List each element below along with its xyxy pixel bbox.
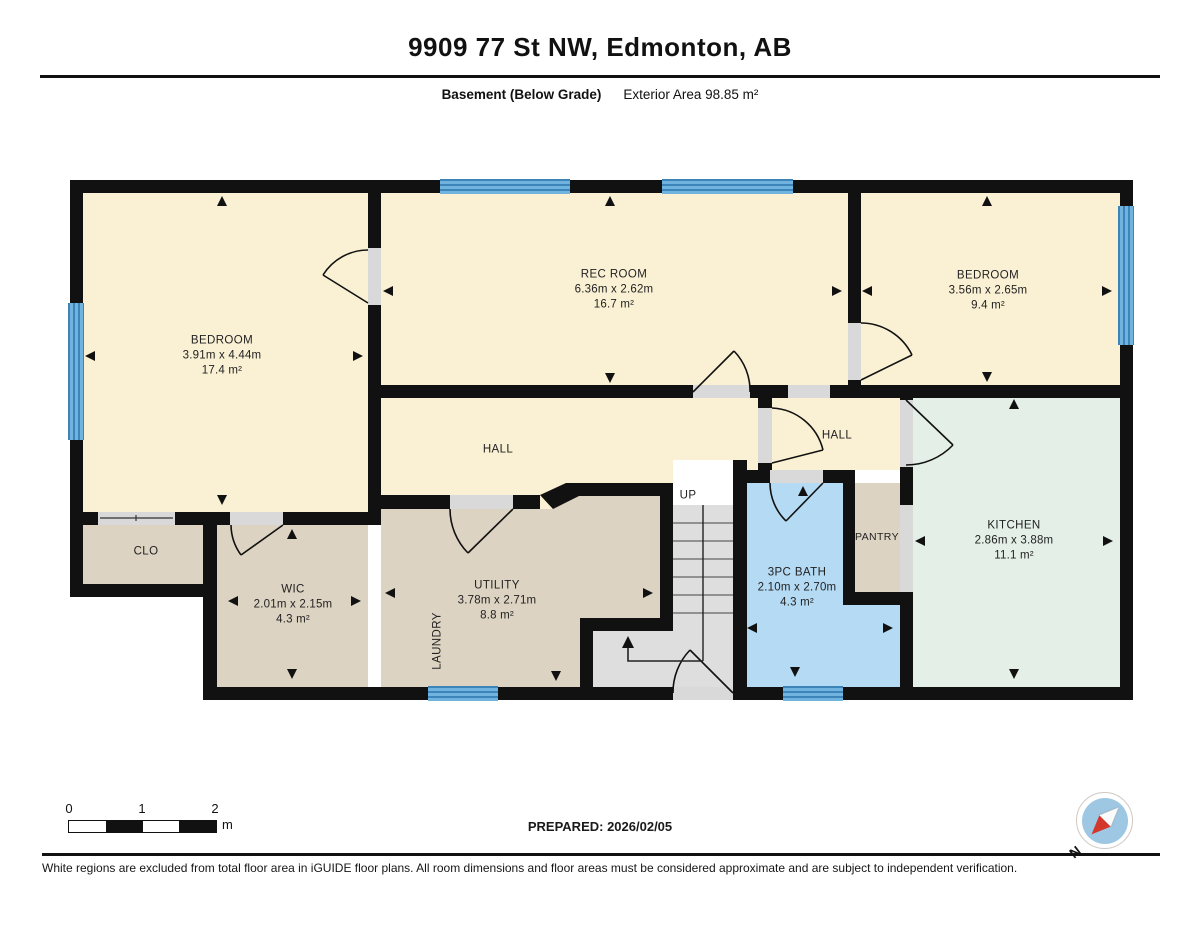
dimension-arrow — [551, 671, 561, 681]
dimension-arrow — [385, 588, 395, 598]
dimension-arrow — [1102, 286, 1112, 296]
scale-tick-2: 2 — [203, 801, 227, 816]
opening-rec-hall — [788, 385, 830, 398]
wall-stairs-right — [733, 460, 747, 700]
door-sill-utility — [450, 495, 513, 509]
dimension-arrow — [351, 596, 361, 606]
wall-landing-top — [593, 618, 673, 631]
title-divider — [40, 75, 1160, 78]
dimension-arrow — [982, 196, 992, 206]
exterior-area-label: Exterior Area 98.85 m² — [623, 87, 758, 102]
dimension-arrow — [287, 669, 297, 679]
window-rec-room-2 — [662, 179, 793, 194]
wall-bottom — [203, 687, 1133, 700]
room-utility-upper — [553, 496, 660, 509]
dimension-arrow — [1009, 669, 1019, 679]
scale-unit: m — [222, 817, 233, 832]
wall-bedroom-rec-divider — [368, 193, 381, 525]
stairs — [673, 505, 733, 631]
room-bath-lower — [843, 605, 900, 687]
wall-stairs-left — [660, 496, 673, 631]
door-sill-rec-room — [693, 385, 750, 398]
window-bedroom-left — [68, 303, 84, 440]
door-sill-landing — [673, 687, 733, 700]
dimension-arrow — [915, 536, 925, 546]
dimension-arrow — [982, 372, 992, 382]
door-sill-closet — [98, 512, 175, 525]
wall-closet-wic — [203, 525, 217, 700]
door-sill-bedroom-left — [368, 248, 381, 305]
label-stairs-up: UP — [680, 489, 697, 504]
dimension-arrow — [287, 529, 297, 539]
scale-bar — [68, 820, 217, 833]
dimension-arrow — [832, 286, 842, 296]
label-bedroom-left: BEDROOM 3.91m x 4.44m 17.4 m² — [183, 334, 262, 379]
opening-pantry-kitchen — [900, 505, 913, 592]
dimension-arrow — [862, 286, 872, 296]
wall-closet-bottom — [70, 584, 217, 597]
footer-divider — [42, 853, 1160, 856]
wall-hall-utility-right — [566, 483, 673, 496]
floor-label: Basement (Below Grade) — [442, 87, 602, 102]
door-sill-kitchen — [900, 400, 913, 467]
wall-landing-left — [580, 618, 593, 700]
wall-right-lower — [1120, 345, 1133, 700]
label-wic: WIC 2.01m x 2.15m 4.3 m² — [254, 583, 333, 628]
window-utility — [428, 686, 498, 701]
dimension-arrow — [383, 286, 393, 296]
label-utility: UTILITY 3.78m x 2.71m 8.8 m² — [458, 579, 537, 624]
prepared-date: PREPARED: 2026/02/05 — [400, 819, 800, 834]
dimension-arrow — [747, 623, 757, 633]
dimension-arrow — [1009, 399, 1019, 409]
door-sill-wic — [230, 512, 283, 525]
dimension-arrow — [790, 667, 800, 677]
label-hall-right: HALL — [822, 429, 852, 444]
door-sill-bedroom-right — [848, 323, 861, 380]
dimension-arrow — [85, 351, 95, 361]
window-rec-room-1 — [440, 179, 570, 194]
dimension-arrow — [643, 588, 653, 598]
disclaimer-text: White regions are excluded from total fl… — [42, 861, 1182, 875]
label-kitchen: KITCHEN 2.86m x 3.88m 11.1 m² — [975, 519, 1054, 564]
dimension-arrow — [798, 486, 808, 496]
dimension-arrow — [605, 196, 615, 206]
window-bath — [783, 686, 843, 701]
dimension-arrow — [883, 623, 893, 633]
wall-pantry-left — [843, 470, 855, 605]
scale-tick-0: 0 — [57, 801, 81, 816]
label-closet: CLO — [134, 545, 159, 560]
door-sill-hall — [758, 408, 772, 463]
label-bedroom-right: BEDROOM 3.56m x 2.65m 9.4 m² — [949, 269, 1028, 314]
wall-right-upper — [1120, 180, 1133, 206]
dimension-arrow — [217, 495, 227, 505]
stair-landing — [593, 631, 733, 687]
dimension-arrow — [551, 494, 561, 504]
scale-tick-1: 1 — [130, 801, 154, 816]
wall-left-upper — [70, 180, 83, 303]
floorplan-page: 9909 77 St NW, Edmonton, AB Basement (Be… — [0, 0, 1200, 927]
dimension-arrow — [1103, 536, 1113, 546]
label-pantry: PANTRY — [855, 531, 899, 545]
label-laundry: LAUNDRY — [431, 612, 446, 670]
door-sill-bath — [770, 470, 823, 483]
window-bedroom-right — [1118, 206, 1134, 345]
label-bath: 3PC BATH 2.10m x 2.70m 4.3 m² — [758, 566, 837, 611]
wall-mid-horizontal — [381, 385, 1133, 398]
dimension-arrow — [228, 596, 238, 606]
page-title: 9909 77 St NW, Edmonton, AB — [0, 32, 1200, 63]
compass-icon — [1076, 792, 1134, 850]
dimension-arrow — [217, 196, 227, 206]
dimension-arrow — [605, 373, 615, 383]
wall-top — [70, 180, 1133, 193]
label-hall-left: HALL — [483, 443, 513, 458]
dimension-arrow — [353, 351, 363, 361]
floor-subtitle: Basement (Below Grade)Exterior Area 98.8… — [0, 87, 1200, 102]
label-rec-room: REC ROOM 6.36m x 2.62m 16.7 m² — [575, 268, 654, 313]
